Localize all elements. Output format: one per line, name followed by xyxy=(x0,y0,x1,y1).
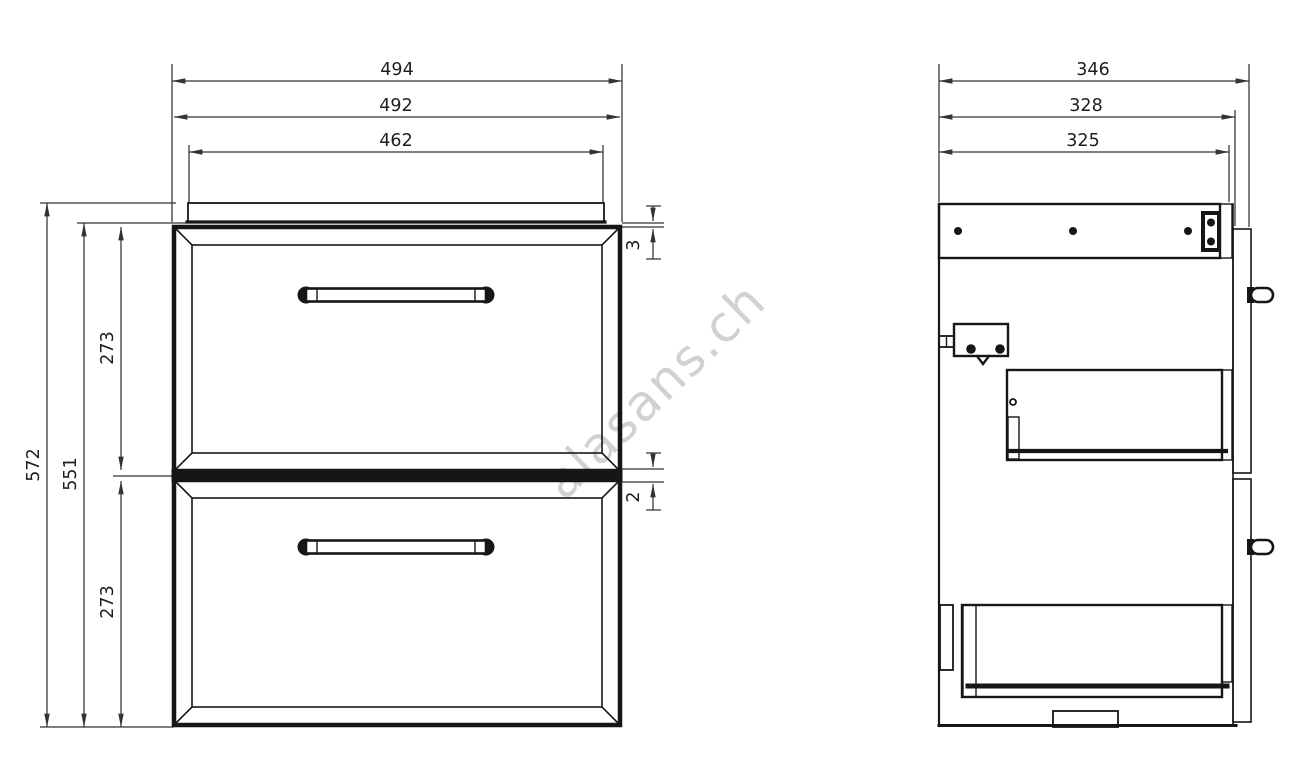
page: alasans.ch 494 492 462 572 551 273 273 xyxy=(0,0,1304,777)
bevel-chamfer xyxy=(176,707,192,723)
bevel-chamfer xyxy=(176,482,192,498)
bevel-chamfer xyxy=(602,707,618,723)
drawer-box xyxy=(962,605,1222,697)
side-drawer-fronts xyxy=(1233,229,1273,722)
dim-label-top-gap: 3 xyxy=(624,239,644,250)
dim-label-height-front: 551 xyxy=(61,457,81,490)
dim-label-depth-body: 328 xyxy=(1069,96,1102,116)
drawer-front-joint-section xyxy=(1222,605,1232,682)
top-section-hatch xyxy=(1220,204,1232,258)
upper-drawer-box xyxy=(1007,370,1232,460)
upper-handle-profile xyxy=(1251,288,1273,302)
lower-drawer-box xyxy=(962,605,1232,697)
front-top-panel xyxy=(187,203,605,222)
top-drawer-front xyxy=(174,227,620,471)
side-carcass xyxy=(939,204,1236,727)
dim-label-bottom-drawer: 273 xyxy=(98,585,118,618)
handle-bar xyxy=(306,289,486,302)
lower-front-section xyxy=(1233,479,1251,722)
dim-label-width-overall: 494 xyxy=(380,60,413,80)
top-rail xyxy=(939,204,1220,258)
side-view: 346 328 325 xyxy=(939,60,1273,727)
upper-front-section xyxy=(1233,229,1251,473)
dim-label-middle-gap: 2 xyxy=(624,491,644,502)
drawer-back-section xyxy=(963,605,976,697)
front-view: 494 492 462 572 551 273 273 xyxy=(24,60,664,727)
top-drawer-handle xyxy=(298,287,495,304)
screw-hole xyxy=(954,227,962,235)
clip-notch xyxy=(977,356,989,364)
top-panel xyxy=(188,203,604,222)
bevel-chamfer xyxy=(176,453,192,469)
top-drawer-bevel xyxy=(192,245,602,453)
screw-hole xyxy=(1184,227,1192,235)
front-width-dimensions: 494 492 462 xyxy=(172,60,622,222)
clip-pin xyxy=(995,344,1005,354)
wall-mount-clip xyxy=(939,324,1008,364)
side-depth-dimensions: 346 328 325 xyxy=(939,60,1249,227)
bottom-drawer-handle xyxy=(298,539,495,556)
dim-label-height-overall: 572 xyxy=(24,448,44,481)
lower-handle-profile xyxy=(1251,540,1273,554)
clip-pin xyxy=(966,344,976,354)
dim-label-width-body: 492 xyxy=(379,96,412,116)
bottom-drawer-front xyxy=(174,480,620,725)
back-panel-section xyxy=(940,605,953,670)
dim-label-top-drawer: 273 xyxy=(98,331,118,364)
bevel-chamfer xyxy=(602,482,618,498)
drawer-divider xyxy=(172,469,623,482)
dim-label-depth-carcass: 325 xyxy=(1066,131,1099,151)
bevel-chamfer xyxy=(176,229,192,245)
handle-bar xyxy=(306,541,486,554)
drawer-box xyxy=(1007,370,1222,460)
bracket-hole xyxy=(1207,238,1215,246)
front-height-dimensions: 572 551 273 273 xyxy=(24,203,188,727)
dim-label-width-top-panel: 462 xyxy=(379,131,412,151)
bottom-drawer-bevel xyxy=(192,498,602,707)
technical-drawing-canvas: alasans.ch 494 492 462 572 551 273 273 xyxy=(0,0,1304,777)
bracket-hole xyxy=(1207,219,1215,227)
dim-label-depth-overall: 346 xyxy=(1076,60,1109,80)
screw-hole xyxy=(1069,227,1077,235)
drawer-front-joint-section xyxy=(1222,370,1232,460)
dowel-hole xyxy=(1010,399,1016,405)
bevel-chamfer xyxy=(602,229,618,245)
